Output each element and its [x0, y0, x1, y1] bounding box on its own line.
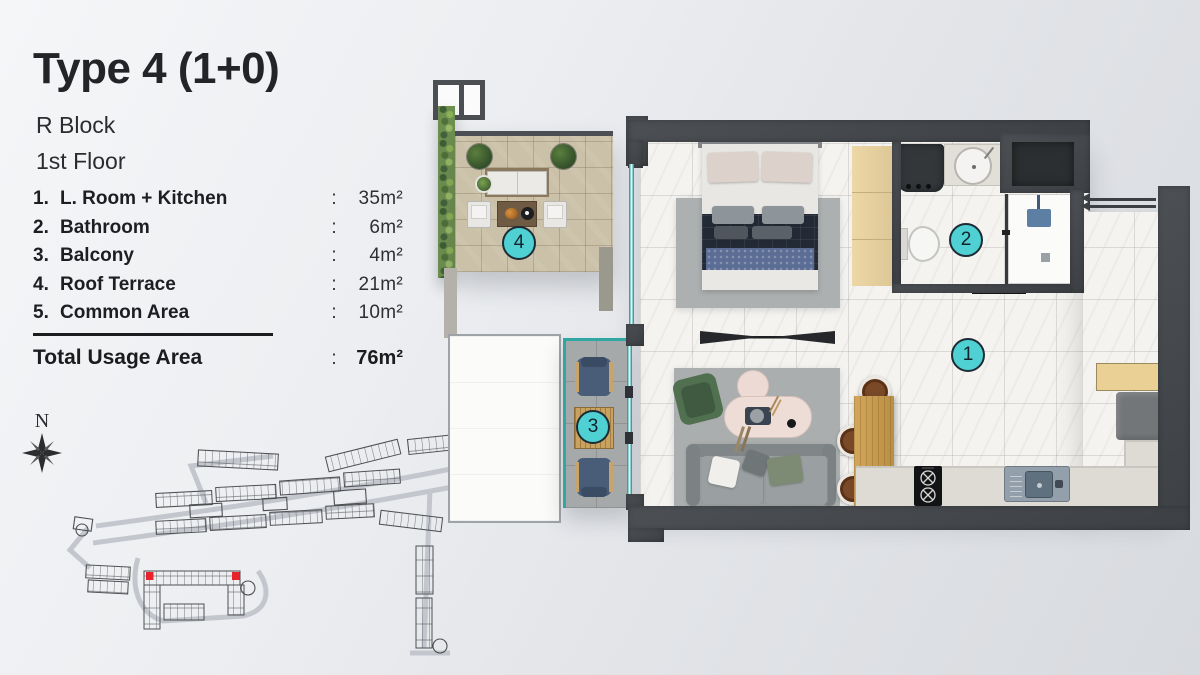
wall-connector: [444, 268, 457, 338]
shower-glass-panel: [1005, 194, 1008, 284]
balcony-glass-rail: [563, 338, 566, 508]
decor-bowl: [787, 419, 796, 428]
bed-pillow: [714, 226, 748, 239]
tv-unit: [700, 329, 835, 346]
block-label: R Block: [36, 112, 115, 139]
wall: [892, 142, 901, 290]
terrace-wall: [455, 131, 613, 136]
legend-colon: :: [327, 188, 341, 210]
terrace-wall-column: [599, 247, 613, 311]
wall: [628, 506, 1190, 530]
kitchen-shelf: [1096, 363, 1166, 391]
legend-colon: :: [327, 217, 341, 239]
planter-bush: [467, 144, 492, 169]
legend-number: 2.: [33, 217, 60, 239]
legend-area: 35m²: [341, 188, 403, 210]
legend-row: 1. L. Room + Kitchen : 35m²: [33, 188, 403, 217]
wardrobe: [852, 146, 896, 286]
bed-throw-blanket: [706, 248, 814, 270]
legend-row: 4. Roof Terrace : 21m²: [33, 274, 403, 303]
snack-bowl: [505, 208, 518, 219]
terrace-sofa: [487, 171, 547, 195]
bed-sheet: [702, 270, 818, 290]
door-handle: [625, 386, 633, 398]
legend-area: 4m²: [341, 245, 403, 267]
sofa-armrest: [686, 444, 700, 506]
legend-row: 3. Balcony : 4m²: [33, 245, 403, 274]
terrace-armchair: [543, 201, 567, 228]
legend-area: 6m²: [341, 217, 403, 239]
wall: [892, 284, 1084, 293]
shaft: [1012, 142, 1074, 186]
room-marker-terrace: 4: [502, 226, 536, 260]
room-marker-living: 1: [951, 338, 985, 372]
coffee-table: [724, 396, 812, 438]
area-legend: 1. L. Room + Kitchen : 35m² 2. Bathroom …: [33, 188, 403, 331]
legend-name: Roof Terrace: [60, 274, 176, 296]
terrace-green-wall: [438, 106, 455, 278]
marker-number: 3: [588, 416, 599, 438]
floor-label: 1st Floor: [36, 148, 125, 175]
legend-number: 1.: [33, 188, 60, 210]
planter-bush: [551, 144, 576, 169]
decor-plant: [769, 396, 779, 413]
shower-drain: [1041, 253, 1050, 262]
legend-number: 5.: [33, 302, 60, 324]
bed-pillow: [707, 151, 758, 183]
sink-basin: [1025, 471, 1053, 498]
legend-colon: :: [327, 245, 341, 267]
shower: [1008, 194, 1072, 284]
wall: [626, 324, 644, 346]
room-marker-balcony: 3: [576, 410, 610, 444]
marker-number: 2: [961, 229, 972, 251]
sink-faucet: [1055, 480, 1063, 488]
plate: [521, 207, 534, 220]
cooktop: [914, 466, 942, 506]
legend-name: Common Area: [60, 302, 189, 324]
entry-door-leaf: [1090, 205, 1156, 208]
total-colon: :: [327, 348, 341, 370]
total-usage-label: Total Usage Area: [33, 346, 202, 370]
balcony-glass-rail: [563, 338, 629, 341]
legend-divider: [33, 333, 273, 336]
floor-plan-page: Type 4 (1+0) R Block 1st Floor 1. L. Roo…: [0, 0, 1200, 675]
legend-name: L. Room + Kitchen: [60, 188, 227, 210]
shower-pipe: [1037, 195, 1040, 210]
sofa-pillow: [707, 455, 740, 488]
legend-number: 4.: [33, 274, 60, 296]
adjacent-terrace-outline: [448, 334, 561, 523]
legend-name: Bathroom: [60, 217, 150, 239]
door-handle: [625, 432, 633, 444]
legend-colon: :: [327, 302, 341, 324]
balcony-sliding-door: [627, 344, 632, 496]
wall: [628, 528, 664, 542]
legend-area: 21m²: [341, 274, 403, 296]
legend-number: 3.: [33, 245, 60, 267]
page-title: Type 4 (1+0): [33, 44, 279, 94]
bed-pillow: [761, 151, 812, 183]
kitchen-sink: [1004, 466, 1070, 502]
total-usage-area: 76m²: [341, 347, 403, 370]
room-marker-bathroom: 2: [949, 223, 983, 257]
legend-colon: :: [327, 274, 341, 296]
bed-pillow: [752, 226, 792, 239]
marker-number: 1: [963, 344, 974, 366]
entry-door-leaf: [1090, 198, 1156, 201]
marker-number: 4: [514, 232, 525, 254]
bed-pillow: [712, 206, 754, 224]
site-buildings: [86, 432, 477, 648]
shower-door-handle: [1002, 230, 1010, 235]
highlighted-unit-marker: [232, 572, 240, 580]
shower-head: [1027, 209, 1051, 227]
sink-drainboard: [1010, 472, 1022, 497]
legend-name: Balcony: [60, 245, 134, 267]
terrace-coffee-table: [497, 201, 537, 227]
tray: [745, 407, 771, 425]
bed-pillow: [762, 206, 804, 224]
terrace-armchair: [467, 201, 491, 228]
legend-row: 2. Bathroom : 6m²: [33, 217, 403, 246]
wall: [1158, 186, 1190, 530]
balcony-chair: [577, 358, 611, 396]
highlighted-unit-marker: [146, 572, 154, 580]
terrace-potted-plant: [477, 177, 491, 191]
sofa-pillow: [766, 454, 804, 486]
legend-row: 5. Common Area : 10m²: [33, 302, 403, 331]
balcony-chair: [577, 458, 611, 496]
bedroom-window: [629, 164, 634, 326]
washing-machine: [898, 144, 944, 192]
legend-area: 10m²: [341, 302, 403, 324]
entry-door-arrow: [1081, 201, 1090, 211]
total-usage-row: Total Usage Area : 76m²: [33, 346, 403, 376]
site-plan-map: [58, 408, 478, 666]
